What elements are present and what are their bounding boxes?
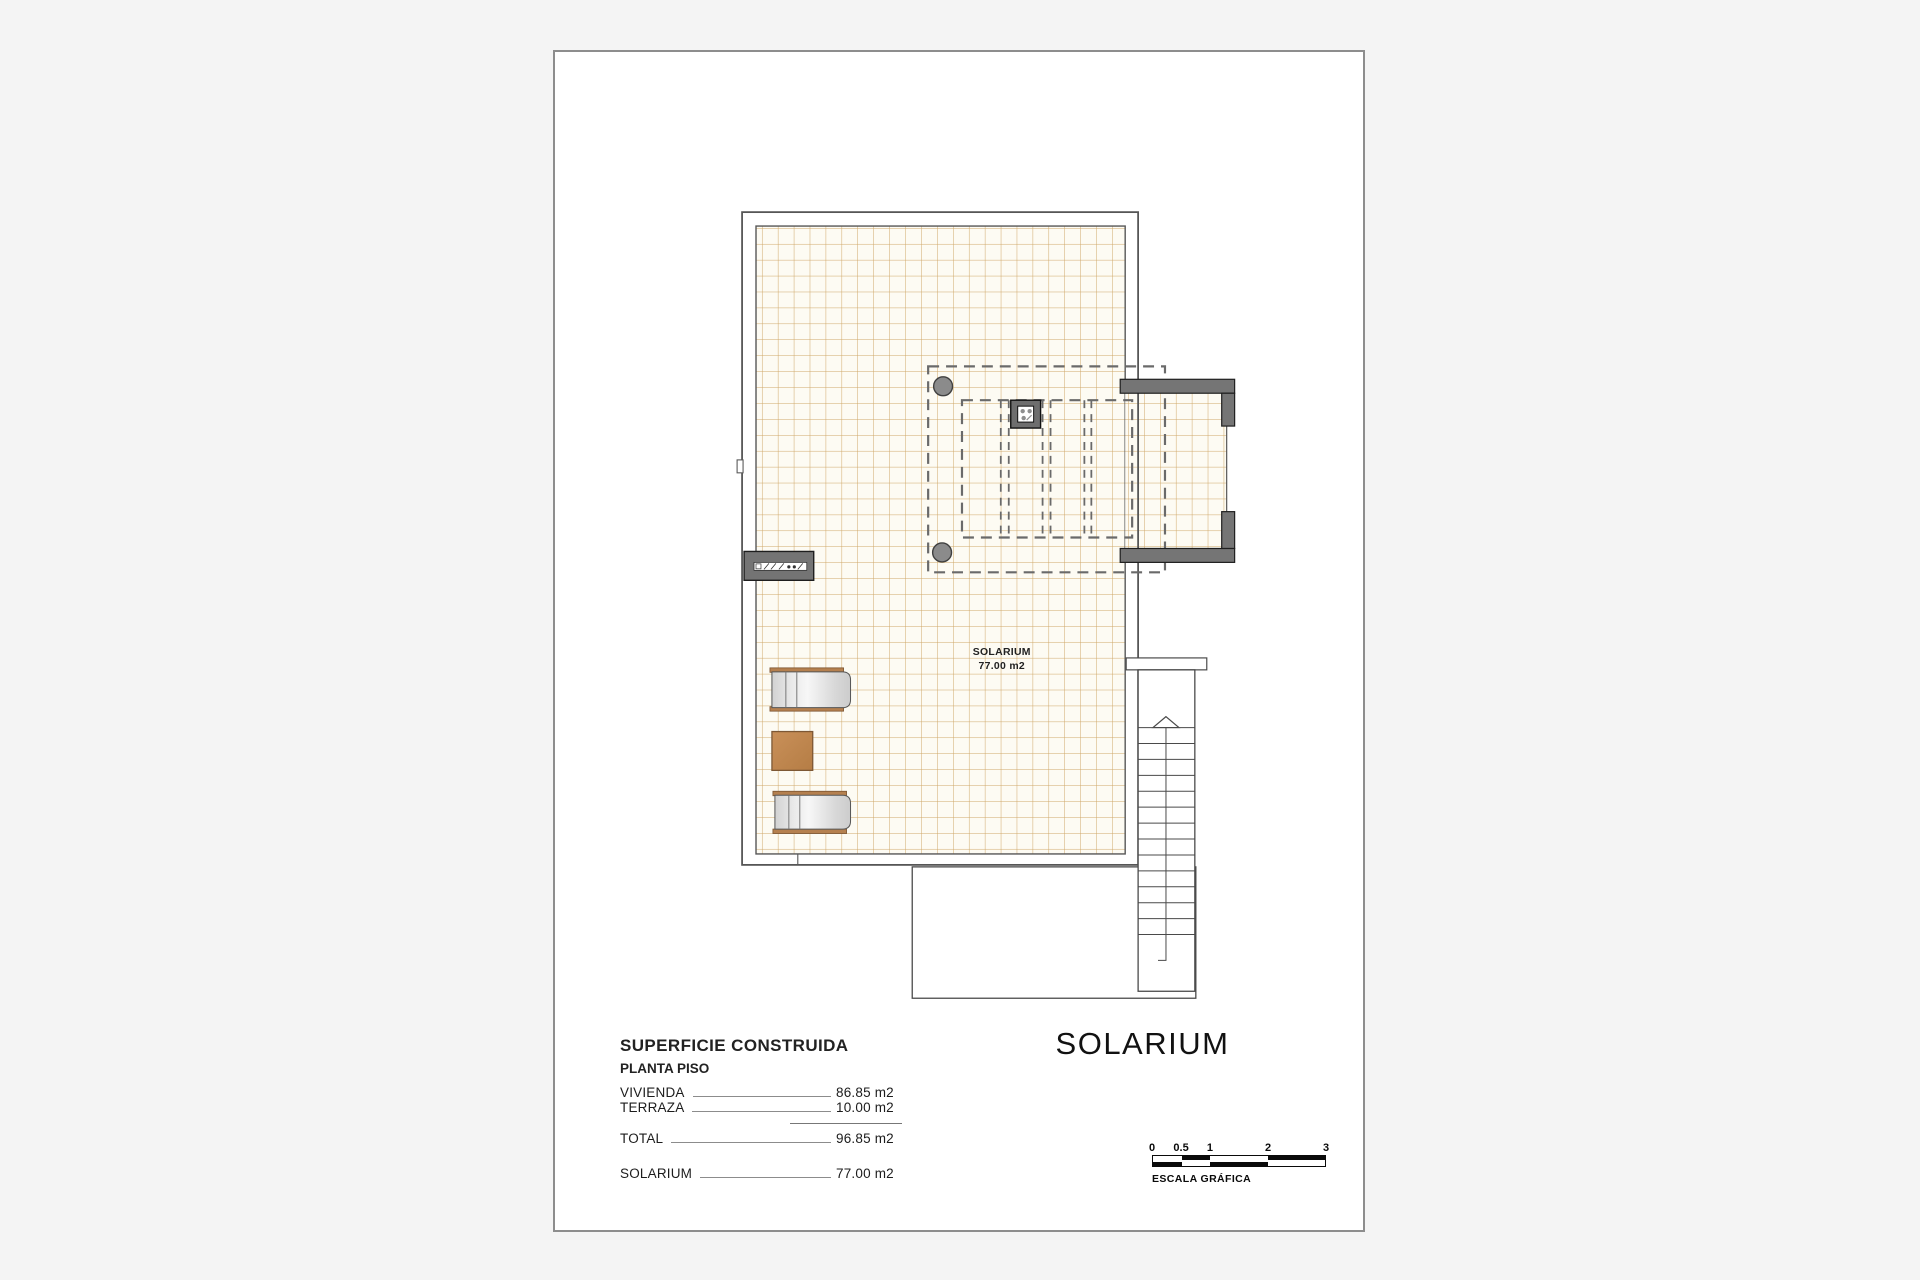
subtotal-divider: [790, 1123, 902, 1124]
scale-caption: ESCALA GRÁFICA: [1152, 1173, 1326, 1185]
sun-lounger: [770, 668, 851, 711]
legend-row-label: TOTAL: [620, 1131, 663, 1146]
legend-row: TERRAZA 10.00 m2: [620, 1100, 902, 1115]
leader-line: [700, 1177, 831, 1178]
scale-tick: 3: [1323, 1142, 1329, 1154]
scale-segment: [1153, 1162, 1182, 1166]
legend-subtitle: PLANTA PISO: [620, 1061, 709, 1076]
leader-line: [671, 1142, 831, 1143]
scale-tick: 0: [1149, 1142, 1155, 1154]
legend-row: TOTAL 96.85 m2: [620, 1131, 902, 1146]
legend-row-label: SOLARIUM: [620, 1166, 692, 1181]
legend-row-label: TERRAZA: [620, 1100, 684, 1115]
legend-row-value: 10.00 m2: [836, 1100, 902, 1115]
legend-row: VIVIENDA 86.85 m2: [620, 1085, 902, 1100]
scale-segment: [1210, 1162, 1267, 1166]
scale-bar: [1152, 1155, 1326, 1167]
leader-line: [693, 1096, 831, 1097]
scale-ticks: 0 0.5 1 2 3: [1152, 1142, 1326, 1155]
scale-tick: 1: [1207, 1142, 1213, 1154]
legend-row-value: 77.00 m2: [836, 1166, 902, 1181]
drawing-title: SOLARIUM: [1010, 1026, 1275, 1062]
legend-title: SUPERFICIE CONSTRUIDA: [620, 1036, 848, 1056]
leader-line: [692, 1111, 831, 1112]
scale-segment: [1268, 1156, 1325, 1160]
legend-row: SOLARIUM 77.00 m2: [620, 1166, 902, 1181]
legend-row-label: VIVIENDA: [620, 1085, 685, 1100]
tiled-bay-floor: [1125, 393, 1226, 548]
stairs-up: [1126, 658, 1207, 991]
room-name-label: SOLARIUM: [973, 647, 1031, 658]
scale-tick: 0.5: [1173, 1142, 1188, 1154]
left-wall-notch: [737, 460, 743, 473]
scale-segment: [1182, 1156, 1211, 1160]
plan-sheet: SOLARIUM 77.00 m2 SUPERFICIE CONSTRUIDA …: [553, 50, 1365, 1232]
drawing-canvas: SOLARIUM 77.00 m2 SUPERFICIE CONSTRUIDA …: [0, 0, 1920, 1280]
sun-lounger: [773, 791, 851, 833]
legend-row-value: 96.85 m2: [836, 1131, 902, 1146]
roof-vent-chimney: [1011, 400, 1041, 428]
wall-ac-unit: [744, 551, 814, 580]
legend-row-value: 86.85 m2: [836, 1085, 902, 1100]
side-table: [772, 732, 813, 771]
room-area-label: 77.00 m2: [979, 661, 1026, 672]
scale-tick: 2: [1265, 1142, 1271, 1154]
graphic-scale: 0 0.5 1 2 3 ESCALA GRÁFICA: [1152, 1142, 1326, 1185]
